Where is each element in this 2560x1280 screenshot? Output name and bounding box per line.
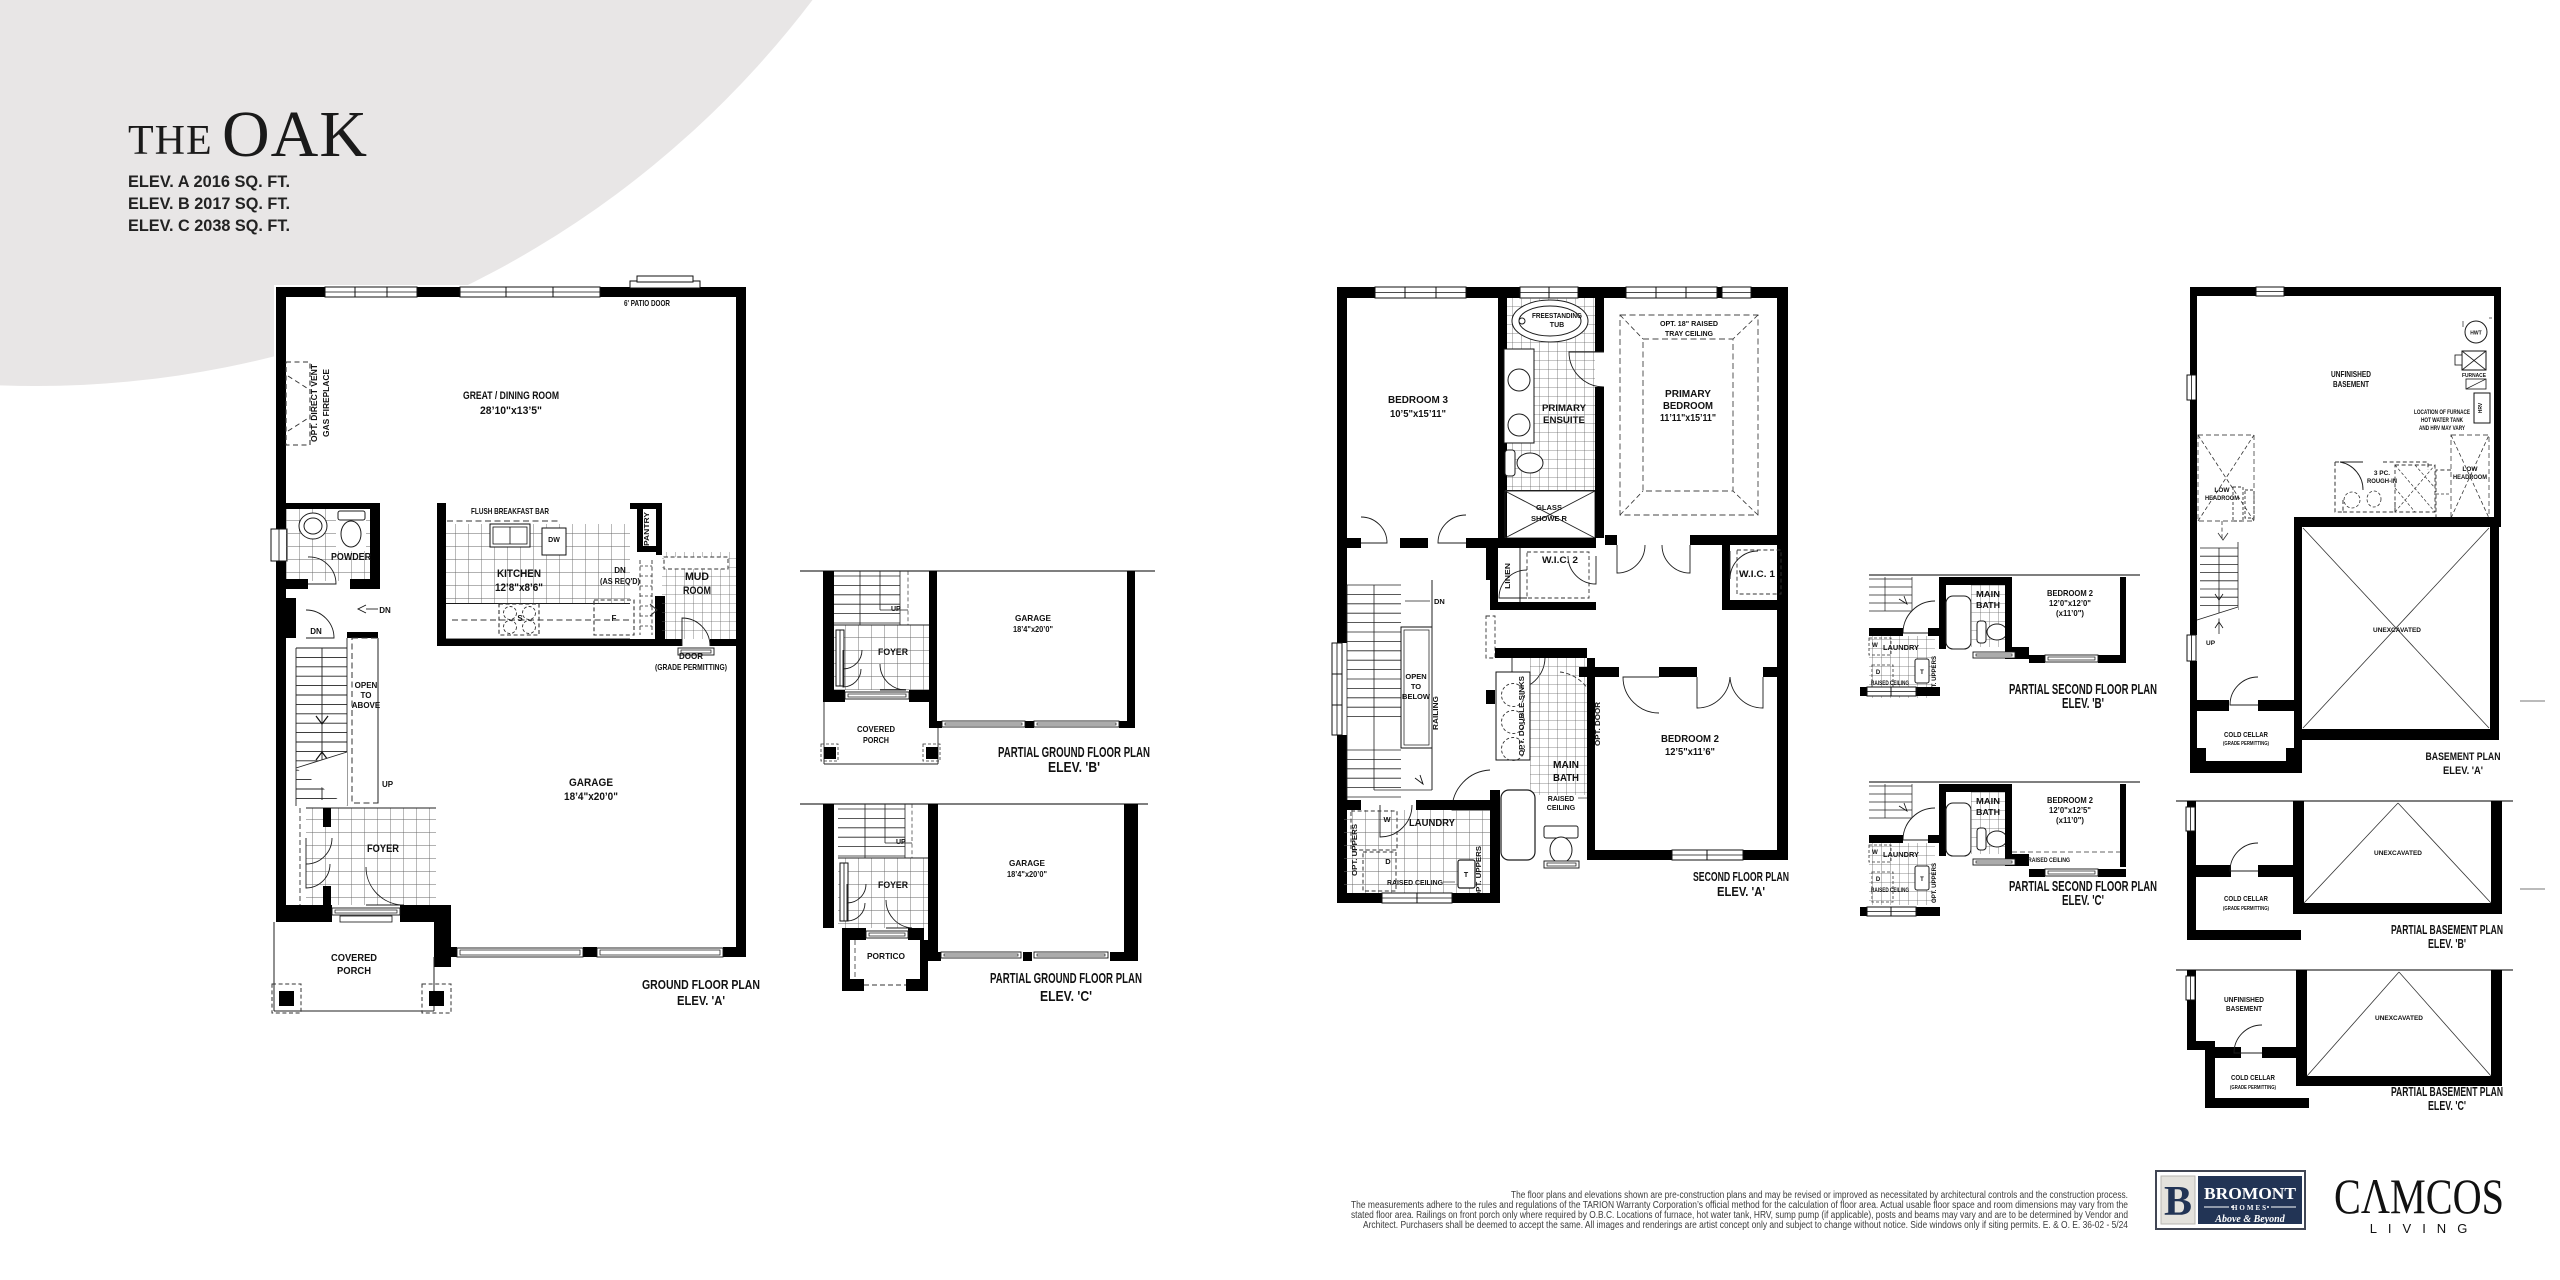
svg-text:FOYER: FOYER (367, 843, 399, 855)
svg-text:W: W (1872, 643, 1878, 649)
svg-text:BASEMENT: BASEMENT (2226, 1006, 2263, 1013)
svg-text:DW: DW (548, 537, 560, 544)
svg-text:PARTIAL GROUND FLOOR PLAN: PARTIAL GROUND FLOOR PLAN (990, 970, 1142, 987)
svg-text:UNFINISHED: UNFINISHED (2224, 997, 2264, 1004)
svg-text:FOYER: FOYER (878, 880, 908, 890)
svg-text:GROUND FLOOR PLAN: GROUND FLOOR PLAN (642, 977, 760, 992)
svg-text:LAUNDRY: LAUNDRY (1883, 643, 1919, 652)
svg-text:ELEV. 'A': ELEV. 'A' (2443, 765, 2483, 777)
svg-text:UP: UP (382, 780, 394, 789)
svg-text:LOCATION OF FURNACE: LOCATION OF FURNACE (2414, 410, 2470, 416)
svg-text:ELEV. 'B': ELEV. 'B' (2428, 936, 2466, 951)
svg-text:T: T (1920, 877, 1924, 883)
svg-text:18’4"x20’0": 18’4"x20’0" (1007, 869, 1047, 879)
svg-text:RAISED CEILING: RAISED CEILING (1387, 878, 1443, 887)
svg-text:RAISED CEILING: RAISED CEILING (2028, 857, 2070, 864)
svg-text:RAILING: RAILING (1433, 695, 1440, 730)
svg-text:ELEV. 'B': ELEV. 'B' (1048, 759, 1100, 776)
svg-text:ROUGH-IN: ROUGH-IN (2367, 478, 2397, 485)
svg-text:UNEXCAVATED: UNEXCAVATED (2375, 1015, 2423, 1022)
svg-text:OAK: OAK (222, 98, 368, 171)
svg-text:(GRADE PERMITTING): (GRADE PERMITTING) (2223, 906, 2269, 912)
svg-text:6' PATIO DOOR: 6' PATIO DOOR (624, 298, 670, 308)
svg-text:D: D (1876, 670, 1881, 676)
svg-text:12’8"x8’6": 12’8"x8’6" (495, 582, 543, 594)
svg-text:W.I.C. 1: W.I.C. 1 (1739, 569, 1775, 579)
svg-text:BASEMENT PLAN: BASEMENT PLAN (2426, 751, 2501, 763)
svg-text:CΛMCOS: CΛMCOS (2334, 1168, 2504, 1224)
svg-text:10’5"x15’11": 10’5"x15’11" (1390, 408, 1446, 420)
svg-text:KITCHEN: KITCHEN (497, 568, 541, 580)
svg-text:11’11"x15’11": 11’11"x15’11" (1660, 413, 1716, 424)
svg-text:AND HRV MAY VARY: AND HRV MAY VARY (2419, 426, 2465, 432)
svg-text:T: T (1464, 872, 1469, 879)
svg-text:(AS REQ'D): (AS REQ'D) (600, 577, 640, 586)
svg-text:PRIMARY: PRIMARY (1542, 403, 1587, 414)
svg-text:BEDROOM 2: BEDROOM 2 (1661, 733, 1719, 745)
svg-text:FOYER: FOYER (878, 647, 908, 657)
svg-text:MAIN: MAIN (1553, 760, 1579, 771)
svg-text:S: S (517, 614, 523, 623)
svg-text:HEADROOM: HEADROOM (2205, 495, 2239, 502)
svg-text:FURNACE: FURNACE (2462, 373, 2486, 379)
svg-text:GARAGE: GARAGE (1015, 613, 1051, 623)
svg-text:SHOWE R: SHOWE R (1531, 514, 1568, 523)
svg-text:HWT: HWT (2470, 331, 2481, 337)
svg-text:ELEV. 'A': ELEV. 'A' (1717, 884, 1765, 899)
svg-text:18’4"x20’0": 18’4"x20’0" (564, 791, 618, 803)
svg-text:(x11’0"): (x11’0") (2056, 815, 2084, 825)
svg-text:UNFINISHED: UNFINISHED (2331, 369, 2371, 379)
svg-text:ELEV. 'C': ELEV. 'C' (1040, 988, 1092, 1005)
svg-text:PRIMARY: PRIMARY (1665, 389, 1711, 400)
svg-text:GREAT / DINING ROOM: GREAT / DINING ROOM (463, 390, 559, 402)
svg-text:ELEV. 'B': ELEV. 'B' (2062, 695, 2104, 712)
svg-text:HRV: HRV (2478, 402, 2484, 413)
svg-text:HOT WATER TANK: HOT WATER TANK (2421, 418, 2464, 424)
svg-text:BATH: BATH (1553, 773, 1579, 784)
svg-text:W: W (1383, 815, 1391, 824)
svg-text:D: D (1876, 877, 1881, 883)
svg-text:18’4"x20’0": 18’4"x20’0" (1013, 624, 1053, 634)
svg-text:MAIN: MAIN (1976, 590, 2000, 599)
svg-text:BEDROOM 2: BEDROOM 2 (2047, 588, 2093, 598)
svg-text:PORCH: PORCH (337, 966, 371, 977)
svg-text:COVERED: COVERED (331, 953, 377, 964)
svg-text:GARAGE: GARAGE (569, 777, 613, 789)
svg-text:DOOR: DOOR (679, 651, 703, 661)
svg-text:GAS FIREPLACE: GAS FIREPLACE (322, 368, 331, 437)
svg-text:BELOW: BELOW (1402, 692, 1431, 701)
svg-text:PARTIAL BASEMENT PLAN: PARTIAL BASEMENT PLAN (2391, 1084, 2503, 1099)
svg-text:COLD CELLAR: COLD CELLAR (2231, 1075, 2275, 1082)
svg-text:Architect. Purchasers shall be: Architect. Purchasers shall be deemed to… (1363, 1220, 2128, 1231)
svg-text:OPT. DIRECT VENT: OPT. DIRECT VENT (310, 364, 319, 442)
svg-text:TO: TO (1411, 682, 1421, 691)
svg-text:PORTICO: PORTICO (867, 951, 905, 961)
svg-text:TO: TO (361, 691, 372, 700)
svg-text:BATH: BATH (1976, 808, 2000, 817)
svg-text:B: B (2164, 1179, 2192, 1225)
svg-text:BROMONT: BROMONT (2204, 1184, 2297, 1203)
svg-text:LOW: LOW (2214, 487, 2230, 494)
svg-text:OPEN: OPEN (355, 681, 378, 690)
svg-text:12’5"x11’6": 12’5"x11’6" (1665, 746, 1715, 758)
svg-text:FLUSH BREAKFAST BAR: FLUSH BREAKFAST BAR (471, 506, 549, 516)
svg-text:GLASS: GLASS (1536, 503, 1562, 512)
svg-text:OPT. 18" RAISED: OPT. 18" RAISED (1660, 319, 1719, 328)
svg-text:ELEV. B 2017 SQ. FT.: ELEV. B 2017 SQ. FT. (128, 194, 290, 213)
svg-text:UP: UP (891, 606, 901, 613)
svg-text:LAUNDRY: LAUNDRY (1409, 818, 1455, 829)
svg-text:W.I.C. 2: W.I.C. 2 (1542, 555, 1578, 565)
svg-text:RAISED CEILING: RAISED CEILING (1871, 681, 1909, 687)
svg-text:PARTIAL BASEMENT PLAN: PARTIAL BASEMENT PLAN (2391, 922, 2503, 937)
svg-text:OPT. UPPERS: OPT. UPPERS (1352, 824, 1359, 876)
svg-text:HEADROOM: HEADROOM (2453, 474, 2487, 481)
svg-text:THE: THE (128, 118, 213, 164)
svg-text:DN: DN (614, 566, 626, 575)
svg-text:ROOM: ROOM (683, 585, 711, 597)
svg-text:W: W (1872, 850, 1878, 856)
svg-text:LIVING: LIVING (2370, 1221, 2479, 1236)
svg-text:DN: DN (310, 627, 322, 636)
svg-text:BEDROOM 2: BEDROOM 2 (2047, 795, 2093, 805)
svg-text:CEILING: CEILING (1547, 805, 1576, 812)
svg-text:ABOVE: ABOVE (352, 701, 381, 710)
svg-text:TRAY CEILING: TRAY CEILING (1665, 329, 1713, 338)
svg-text:Above & Beyond: Above & Beyond (2214, 1214, 2285, 1225)
svg-text:TUB: TUB (1550, 322, 1564, 329)
svg-text:ELEV. 'C': ELEV. 'C' (2428, 1098, 2466, 1113)
svg-text:COLD CELLAR: COLD CELLAR (2224, 896, 2268, 903)
svg-text:DN: DN (379, 606, 391, 615)
svg-text:3 PC.: 3 PC. (2374, 470, 2390, 477)
svg-text:(GRADE PERMITTING): (GRADE PERMITTING) (2223, 741, 2269, 747)
svg-text:ELEV. C 2038 SQ. FT.: ELEV. C 2038 SQ. FT. (128, 216, 290, 235)
svg-text:COVERED: COVERED (857, 724, 895, 734)
svg-text:FREESTANDING: FREESTANDING (1532, 313, 1582, 320)
svg-text:ELEV. 'C': ELEV. 'C' (2062, 892, 2104, 909)
svg-text:OPT. DOUBLE SINKS: OPT. DOUBLE SINKS (1519, 676, 1526, 756)
svg-text:LAUNDRY: LAUNDRY (1883, 850, 1919, 859)
svg-text:28’10"x13’5": 28’10"x13’5" (480, 405, 542, 417)
svg-text:HOMES: HOMES (2232, 1204, 2268, 1212)
svg-text:SECOND FLOOR PLAN: SECOND FLOOR PLAN (1693, 869, 1789, 884)
svg-text:(GRADE PERMITTING): (GRADE PERMITTING) (655, 662, 727, 672)
svg-text:OPEN: OPEN (1405, 672, 1426, 681)
svg-text:MUD: MUD (685, 571, 709, 583)
svg-text:12’0"x12’0": 12’0"x12’0" (2049, 598, 2091, 608)
svg-text:MAIN: MAIN (1976, 797, 2000, 806)
svg-text:BATH: BATH (1976, 601, 2000, 610)
svg-text:PORCH: PORCH (863, 735, 889, 745)
svg-text:RAISED CEILING: RAISED CEILING (1871, 888, 1909, 894)
svg-text:OPT. UPPERS: OPT. UPPERS (1476, 846, 1483, 898)
svg-text:T: T (1920, 670, 1924, 676)
svg-text:OPT. UPPERS: OPT. UPPERS (1932, 863, 1938, 903)
svg-text:ENSUITE: ENSUITE (1543, 415, 1585, 426)
svg-text:PANTRY: PANTRY (642, 512, 651, 546)
svg-text:DN: DN (1434, 597, 1445, 606)
svg-text:LINEN: LINEN (1505, 563, 1512, 589)
svg-text:POWDER: POWDER (331, 552, 372, 563)
svg-text:COLD CELLAR: COLD CELLAR (2224, 732, 2268, 739)
svg-text:UP: UP (2206, 640, 2216, 647)
svg-text:UP: UP (896, 839, 906, 846)
svg-text:LOW: LOW (2462, 466, 2478, 473)
svg-text:ELEV. 'A': ELEV. 'A' (677, 993, 725, 1008)
svg-text:UNEXCAVATED: UNEXCAVATED (2373, 627, 2421, 634)
svg-text:ELEV. A 2016 SQ. FT.: ELEV. A 2016 SQ. FT. (128, 172, 290, 191)
svg-text:F: F (612, 614, 617, 623)
svg-text:BASEMENT: BASEMENT (2333, 379, 2370, 389)
svg-text:D: D (1385, 857, 1391, 866)
svg-text:GARAGE: GARAGE (1009, 858, 1045, 868)
svg-text:OPT. DOOR: OPT. DOOR (1595, 702, 1602, 746)
svg-text:12’0"x12’5": 12’0"x12’5" (2049, 805, 2091, 815)
svg-text:RAISED: RAISED (1548, 796, 1574, 803)
svg-text:(x11’0"): (x11’0") (2056, 608, 2084, 618)
svg-text:BEDROOM: BEDROOM (1663, 401, 1713, 412)
svg-text:BEDROOM 3: BEDROOM 3 (1388, 394, 1448, 406)
svg-text:(GRADE PERMITTING): (GRADE PERMITTING) (2230, 1085, 2276, 1091)
svg-text:UNEXCAVATED: UNEXCAVATED (2374, 850, 2422, 857)
